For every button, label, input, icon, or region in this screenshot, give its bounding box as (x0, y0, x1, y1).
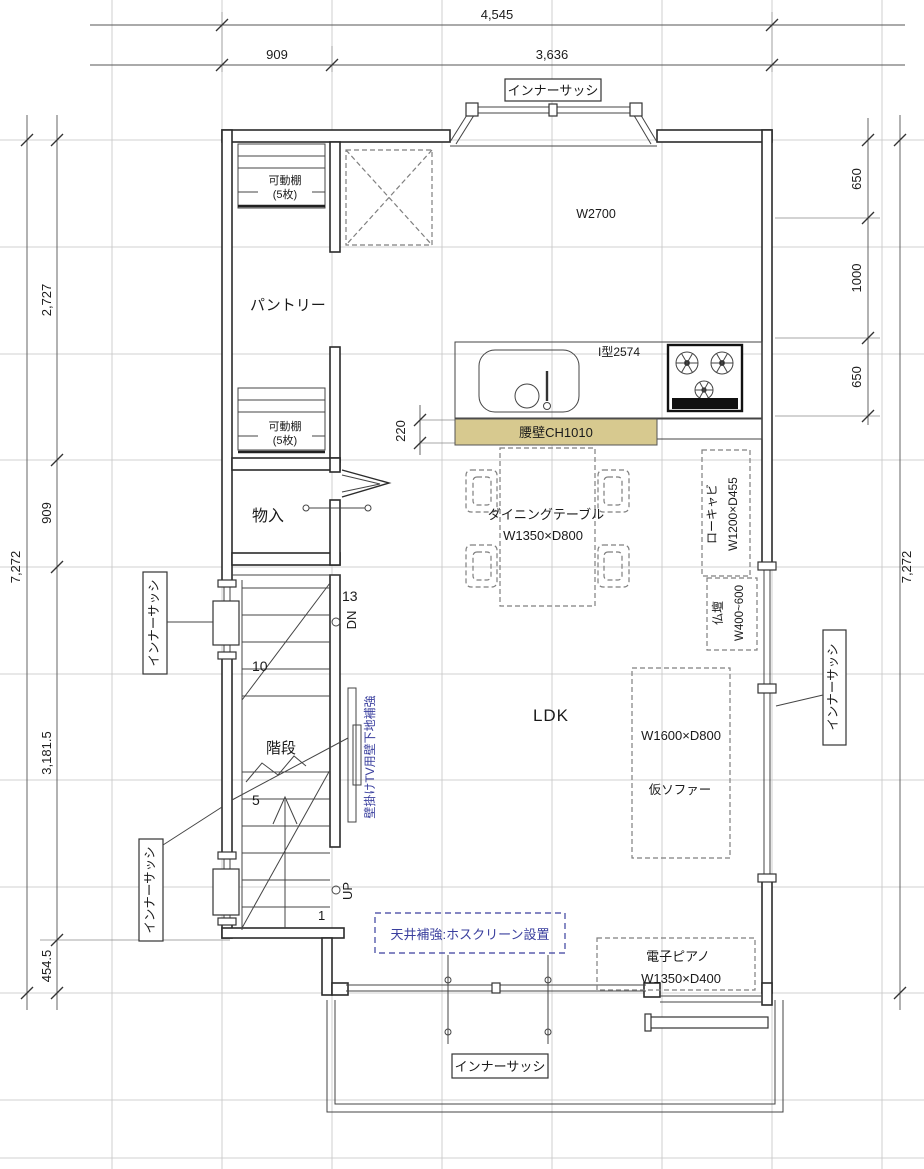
dim-left-total: 7,272 (8, 551, 23, 584)
dim-top-909: 909 (266, 47, 288, 62)
right-window (758, 562, 776, 882)
tv-reinforcement: 壁掛けTV用壁下地補強 (348, 688, 377, 822)
dim-right-650b: 650 (849, 366, 864, 388)
shelf-label-top: 可動棚 (269, 173, 302, 187)
pantry-label: パントリー (250, 297, 326, 314)
sofa-size: W1600×D800 (641, 728, 721, 743)
stove-grill (672, 398, 738, 409)
inner-sash-label-left-upper: インナーサッシ (147, 579, 161, 666)
sofa-label: 仮ソファー (649, 783, 712, 797)
dim-top-3636: 3,636 (536, 47, 569, 62)
waist-wall-label: 腰壁CH1010 (519, 425, 593, 440)
left-window-lower (213, 852, 239, 925)
stair-num-13: 13 (342, 588, 358, 604)
kitchen: 腰壁CH1010 I型2574 W2700 (346, 150, 762, 445)
dining-table (500, 448, 595, 606)
kitchen-type-label: I型2574 (598, 345, 640, 359)
dining-chair (598, 470, 629, 512)
ceiling-note: 天井補強:ホスクリーン設置 (391, 927, 550, 942)
stove (668, 345, 742, 411)
inner-sash-label-right: インナーサッシ (826, 643, 840, 730)
stair-num-5: 5 (252, 792, 260, 808)
storage-label: 物入 (252, 507, 284, 525)
altar-label: 仏壇 (710, 601, 725, 625)
left-window-upper (206, 580, 239, 659)
folding-door (342, 470, 389, 497)
floor-plan-drawing: 4,545 909 3,636 7,272 2,727 909 3,181.5 … (0, 0, 924, 1169)
stair-num-10: 10 (252, 658, 268, 674)
dim-right-650a: 650 (849, 168, 864, 190)
ceiling-reinforcement: 天井補強:ホスクリーン設置 (375, 913, 565, 1044)
stairs-label: 階段 (266, 740, 296, 757)
stair-num-1: 1 (318, 908, 325, 923)
refrigerator-space (346, 150, 432, 245)
floor-plan-svg: 4,545 909 3,636 7,272 2,727 909 3,181.5 … (0, 0, 924, 1169)
sink (479, 350, 579, 412)
dining-chair (466, 470, 497, 512)
dining-set: ダイニングテーブル W1350×D800 (466, 448, 629, 606)
dim-left-2727: 2,727 (39, 284, 54, 317)
shelf-qty-top: (5枚) (273, 187, 297, 201)
shelf-qty-bottom: (5枚) (273, 433, 297, 447)
inner-sash-label-left-lower: インナーサッシ (143, 846, 157, 933)
shelf-label-bottom: 可動棚 (269, 419, 302, 433)
hoscreen-hooks (445, 955, 551, 1044)
dim-right-total: 7,272 (899, 551, 914, 584)
sofa: W1600×D800 仮ソファー (632, 668, 730, 858)
inner-sash-label-top: インナーサッシ (508, 83, 599, 98)
dimension-right: 650 1000 650 7,272 (775, 115, 914, 1010)
low-cabinet-size: W1200×D455 (726, 477, 740, 551)
dining-chair (598, 545, 629, 587)
dimension-left: 7,272 2,727 909 3,181.5 454.5 (8, 115, 230, 1010)
stair-dn: DN (344, 611, 359, 630)
bay-window (450, 103, 657, 146)
dining-label: ダイニングテーブル (488, 507, 604, 522)
balcony (327, 1000, 783, 1112)
buddhist-altar: 仏壇 W400~600 (707, 578, 757, 650)
dimension-top: 4,545 909 3,636 (90, 7, 905, 72)
low-cabinet-label: ローキャビ (705, 484, 719, 544)
walls (222, 130, 772, 1005)
dimension-counter-depth: 220 (393, 405, 455, 455)
dining-chair (466, 545, 497, 587)
room-label-ldk: LDK (533, 706, 569, 725)
dim-left-3181: 3,181.5 (39, 731, 54, 774)
piano-size: W1350×D400 (641, 971, 721, 986)
piano-label: 電子ピアノ (646, 949, 710, 964)
grid-lines (0, 0, 924, 1169)
dining-size: W1350×D800 (503, 528, 583, 543)
dim-left-454: 454.5 (39, 950, 54, 983)
window-width-label: W2700 (576, 207, 616, 221)
dim-220: 220 (393, 420, 408, 442)
altar-size: W400~600 (734, 585, 746, 641)
dim-left-909: 909 (39, 502, 54, 524)
dim-right-1000: 1000 (849, 264, 864, 293)
balcony-rail (648, 1017, 768, 1028)
tv-note: 壁掛けTV用壁下地補強 (362, 695, 377, 818)
inner-sash-label-bottom: インナーサッシ (455, 1059, 546, 1074)
electric-piano: 電子ピアノ W1350×D400 (597, 938, 755, 990)
pantry: 可動棚 (5枚) 可動棚 (5枚) パントリー (238, 144, 326, 452)
low-cabinet: ローキャビ W1200×D455 (702, 450, 750, 576)
storage-closet: 物入 (252, 470, 389, 525)
dim-top-total: 4,545 (481, 7, 514, 22)
stair-up: UP (340, 882, 355, 900)
